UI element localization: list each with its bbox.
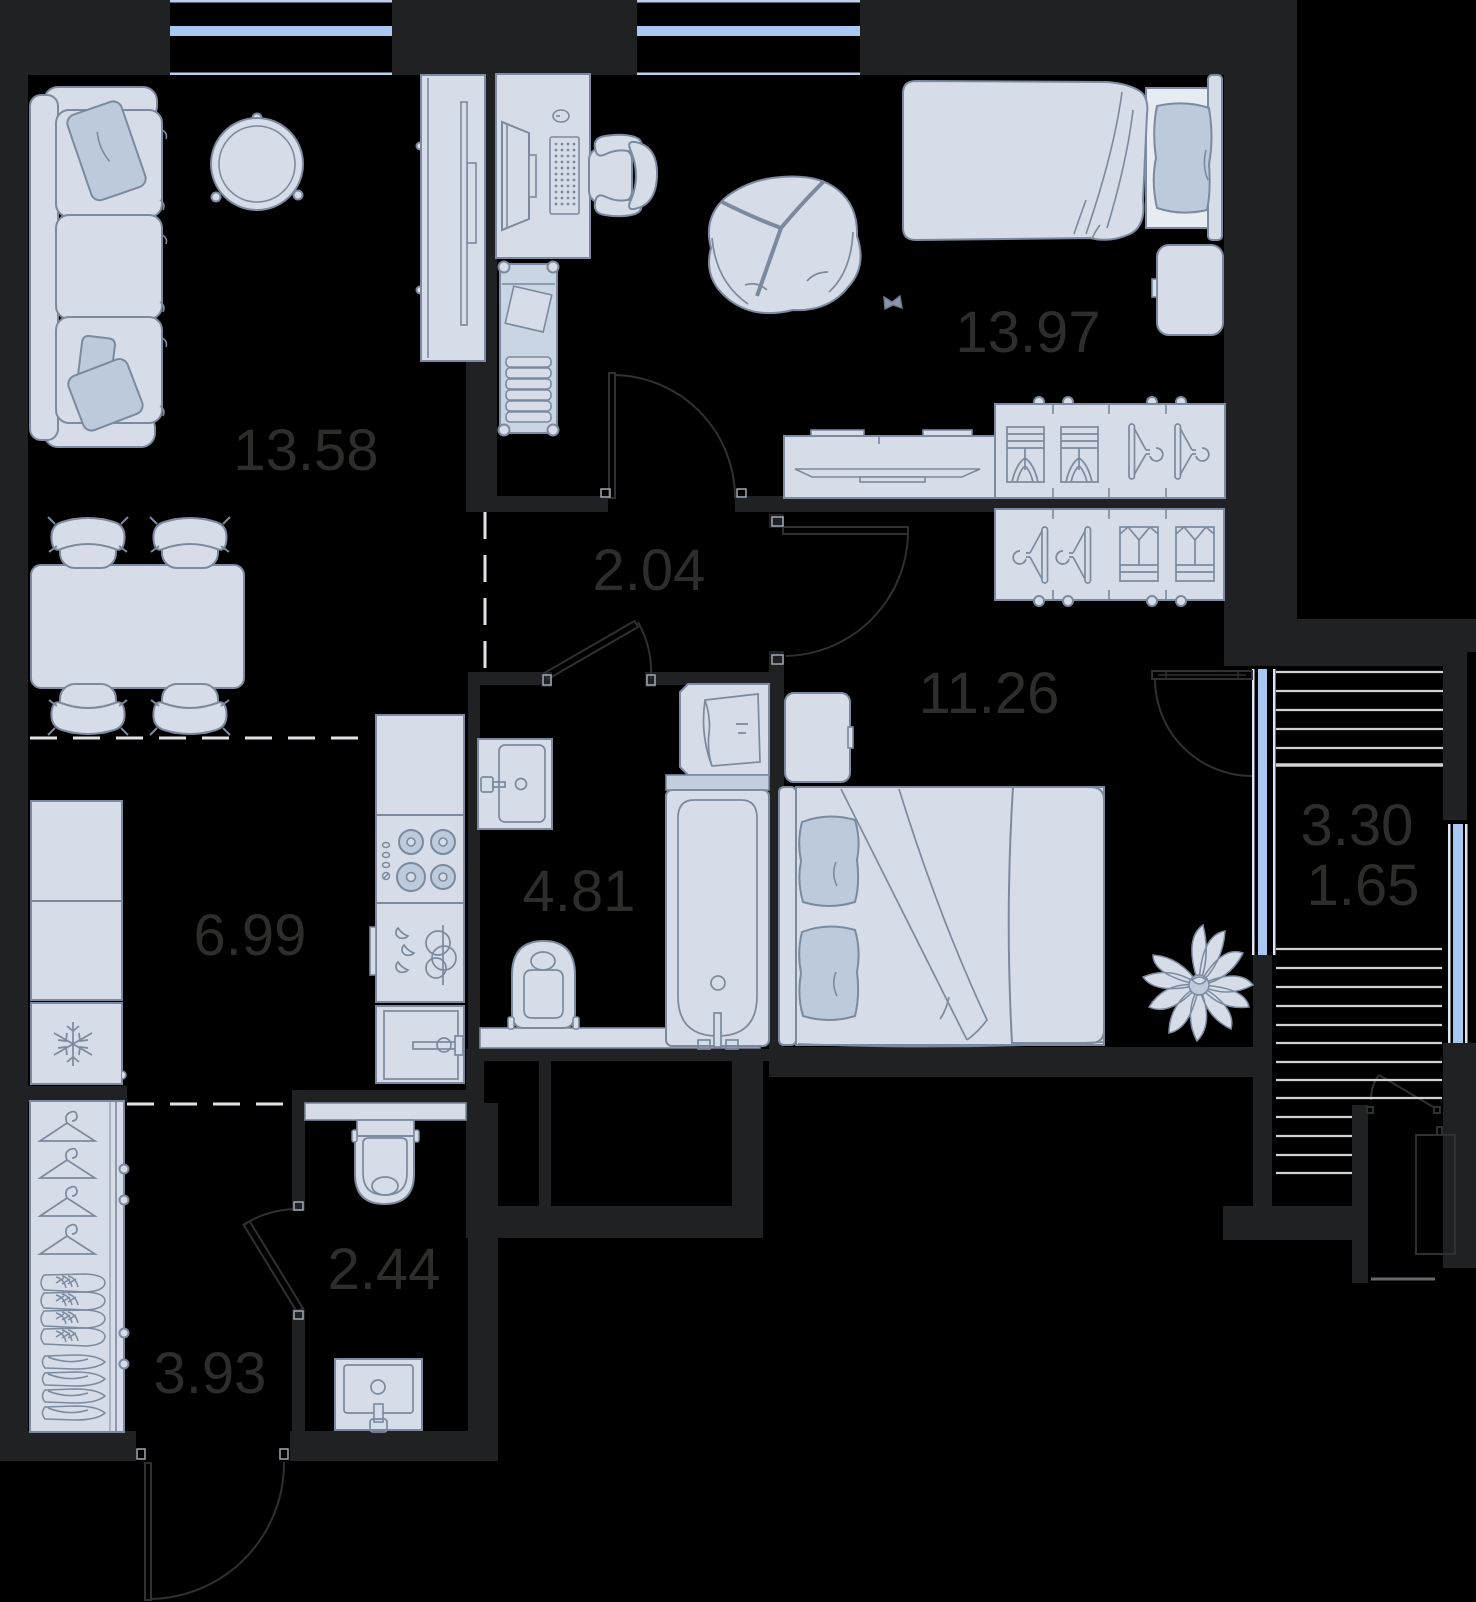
svg-text:4.81: 4.81 (523, 859, 636, 924)
svg-text:2.44: 2.44 (328, 1237, 441, 1302)
svg-text:1.65: 1.65 (1307, 853, 1420, 918)
svg-text:3.93: 3.93 (154, 1341, 267, 1406)
svg-text:6.99: 6.99 (194, 903, 307, 968)
svg-text:13.58: 13.58 (233, 418, 378, 483)
svg-text:13.97: 13.97 (955, 300, 1100, 365)
svg-text:2.04: 2.04 (593, 538, 706, 603)
svg-text:3.30: 3.30 (1301, 793, 1414, 858)
svg-text:11.26: 11.26 (919, 661, 1060, 726)
